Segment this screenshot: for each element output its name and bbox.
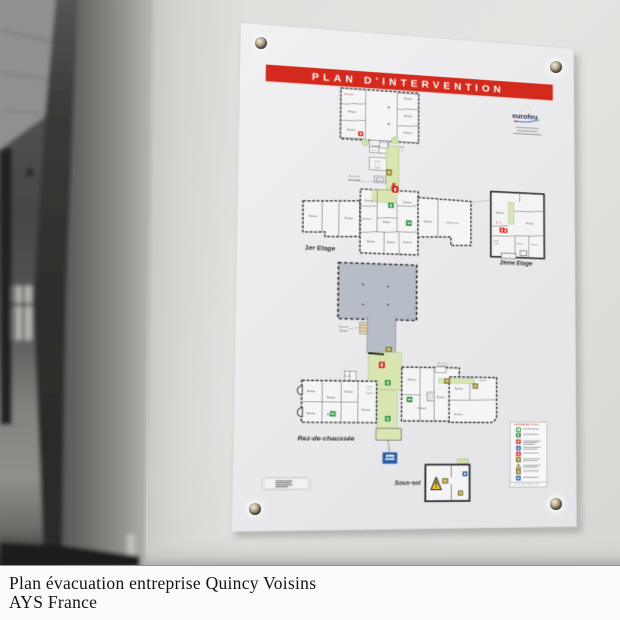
svg-text:Bureau: Bureau — [344, 92, 354, 96]
svg-text:de: de — [367, 389, 372, 391]
svg-text:Bureau: Bureau — [408, 377, 417, 381]
svg-text:WC: WC — [371, 150, 376, 152]
svg-text:Photoc: Photoc — [383, 220, 391, 224]
svg-text:Bureau: Bureau — [345, 216, 354, 220]
svg-text:2ème Etage: 2ème Etage — [499, 260, 533, 268]
svg-text:2ème Etage: 2ème Etage — [348, 179, 361, 182]
svg-text:Bureau: Bureau — [327, 395, 336, 399]
svg-text:Bureau: Bureau — [404, 114, 413, 118]
svg-text:Bureau: Bureau — [404, 96, 413, 100]
svg-text:Bureau: Bureau — [345, 389, 354, 393]
svg-text:Rez-de-chaussée: Rez-de-chaussée — [297, 435, 354, 442]
svg-text:Salle: Salle — [494, 240, 500, 242]
svg-text:Accès: Accès — [339, 326, 349, 329]
svg-text:Bureau: Bureau — [403, 240, 412, 244]
svg-text:Bureau: Bureau — [418, 406, 427, 410]
svg-text:Bureau: Bureau — [437, 395, 446, 399]
svg-text:Accès: Accès — [438, 362, 448, 365]
svg-text:Bureau: Bureau — [517, 242, 524, 245]
svg-text:Bureau: Bureau — [455, 386, 464, 390]
svg-text:pause: pause — [374, 167, 381, 169]
svg-text:Bureau: Bureau — [531, 243, 538, 246]
svg-text:Bureau: Bureau — [307, 411, 316, 415]
svg-text:Comptoir: Comptoir — [478, 379, 486, 382]
svg-text:Bureau: Bureau — [454, 412, 463, 416]
svg-text:info: info — [495, 243, 500, 245]
svg-text:Bureau: Bureau — [362, 408, 371, 412]
svg-text:Bureau: Bureau — [365, 198, 374, 202]
svg-text:Bureau: Bureau — [526, 222, 534, 225]
svg-text:Bureau: Bureau — [307, 389, 316, 393]
svg-text:Bureau: Bureau — [367, 239, 376, 243]
svg-text:1er Etage: 1er Etage — [305, 245, 336, 253]
svg-text:Salle: Salle — [366, 386, 373, 388]
svg-text:0 X XX XXX XX: 0 X XX XXX XX — [515, 483, 539, 486]
svg-text:Bureau: Bureau — [309, 214, 318, 218]
svg-text:Sanit.: Sanit. — [345, 375, 351, 378]
svg-text:RIA: RIA — [496, 221, 502, 225]
svg-text:LEGENDE Plan:: LEGENDE Plan: — [514, 422, 540, 426]
svg-text:Sous-sol: Sous-sol — [394, 480, 420, 487]
svg-text:Bureau: Bureau — [496, 212, 504, 215]
svg-text:réunion: réunion — [366, 392, 374, 395]
svg-text:Salle: Salle — [374, 161, 381, 163]
svg-text:Bureau: Bureau — [404, 131, 413, 135]
svg-text:Etage: Etage — [339, 329, 348, 332]
svg-text:Salle de réunion: Salle de réunion — [446, 221, 460, 224]
svg-text:Bureau: Bureau — [348, 110, 357, 114]
svg-text:de: de — [375, 164, 381, 166]
svg-text:eurofeu: eurofeu — [512, 112, 538, 122]
svg-text:Bureau: Bureau — [347, 128, 356, 132]
svg-text:Bureau: Bureau — [387, 240, 396, 244]
svg-text:Bureau: Bureau — [403, 200, 412, 204]
svg-text:Bureau: Bureau — [424, 219, 433, 223]
